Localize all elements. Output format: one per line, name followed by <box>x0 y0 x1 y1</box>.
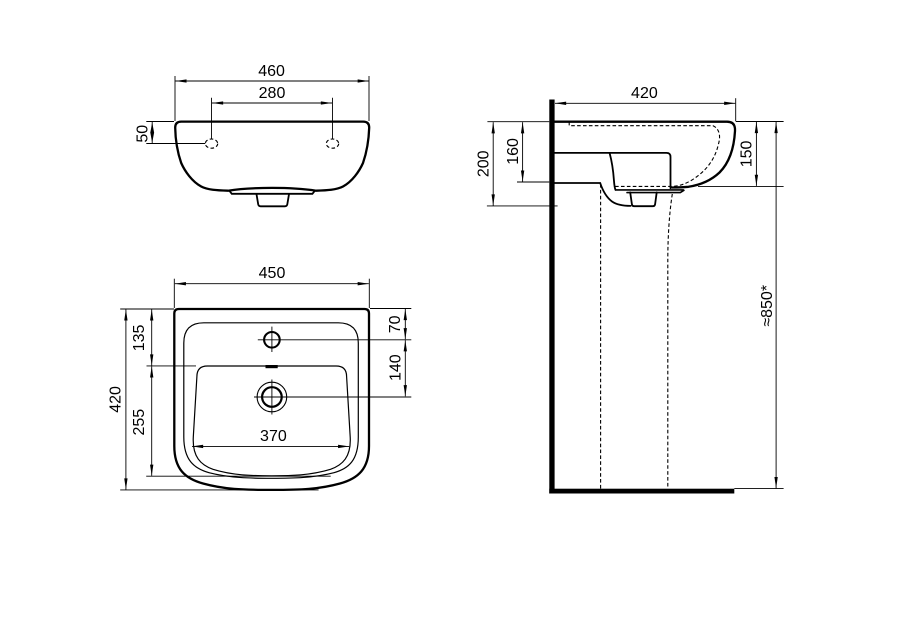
svg-text:≈850*: ≈850* <box>759 285 776 327</box>
svg-text:370: 370 <box>260 428 287 445</box>
svg-text:420: 420 <box>108 386 125 413</box>
svg-text:135: 135 <box>131 324 148 351</box>
svg-text:50: 50 <box>135 125 152 143</box>
svg-text:140: 140 <box>387 354 404 381</box>
svg-text:200: 200 <box>476 150 493 177</box>
svg-text:450: 450 <box>259 265 286 282</box>
svg-text:160: 160 <box>505 138 522 165</box>
svg-text:150: 150 <box>739 140 756 167</box>
svg-text:255: 255 <box>131 409 148 436</box>
svg-text:280: 280 <box>259 85 286 102</box>
svg-text:460: 460 <box>258 63 285 80</box>
svg-text:70: 70 <box>387 315 404 333</box>
svg-text:420: 420 <box>631 85 658 102</box>
